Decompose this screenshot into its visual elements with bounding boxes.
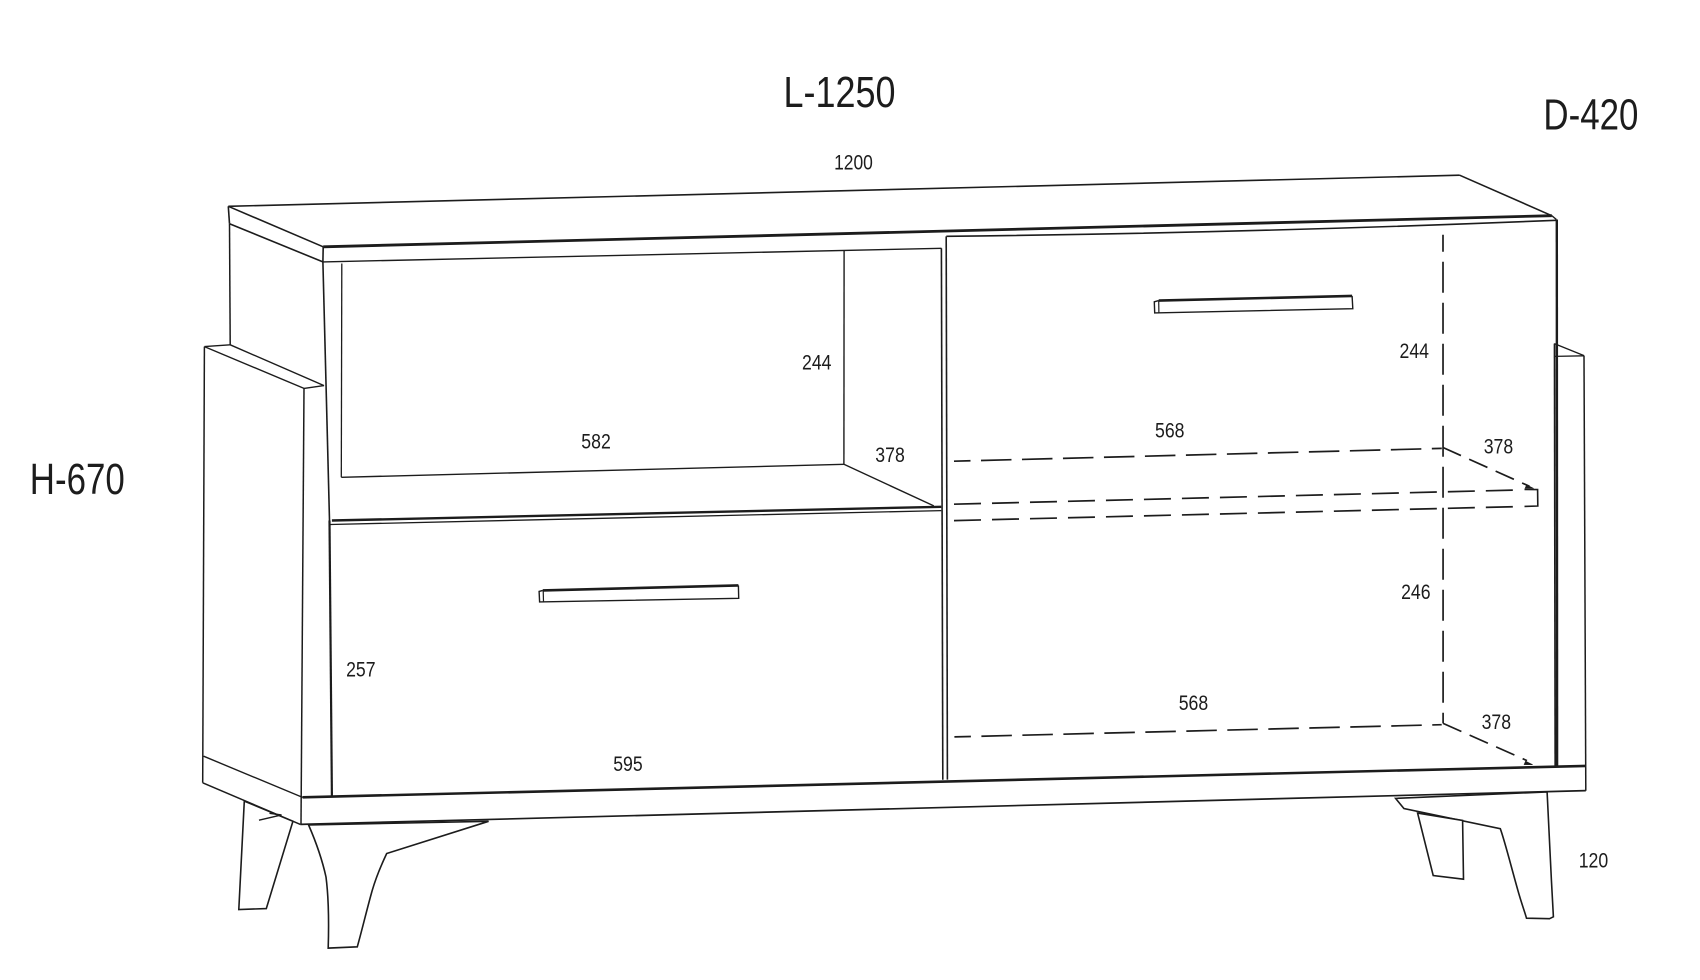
- svg-text:378: 378: [1484, 435, 1514, 459]
- svg-text:120: 120: [1579, 849, 1609, 873]
- svg-text:568: 568: [1155, 419, 1185, 443]
- svg-text:378: 378: [875, 443, 905, 467]
- svg-text:582: 582: [581, 430, 611, 454]
- svg-text:1200: 1200: [834, 151, 873, 175]
- svg-text:246: 246: [1401, 580, 1431, 604]
- svg-text:378: 378: [1482, 710, 1512, 734]
- svg-text:257: 257: [346, 657, 376, 681]
- svg-text:L-1250: L-1250: [784, 69, 896, 117]
- svg-text:244: 244: [802, 351, 832, 375]
- svg-text:H-670: H-670: [30, 456, 125, 504]
- svg-text:244: 244: [1400, 339, 1430, 363]
- svg-text:D-420: D-420: [1543, 92, 1638, 140]
- svg-text:568: 568: [1179, 691, 1209, 715]
- svg-text:595: 595: [613, 752, 643, 776]
